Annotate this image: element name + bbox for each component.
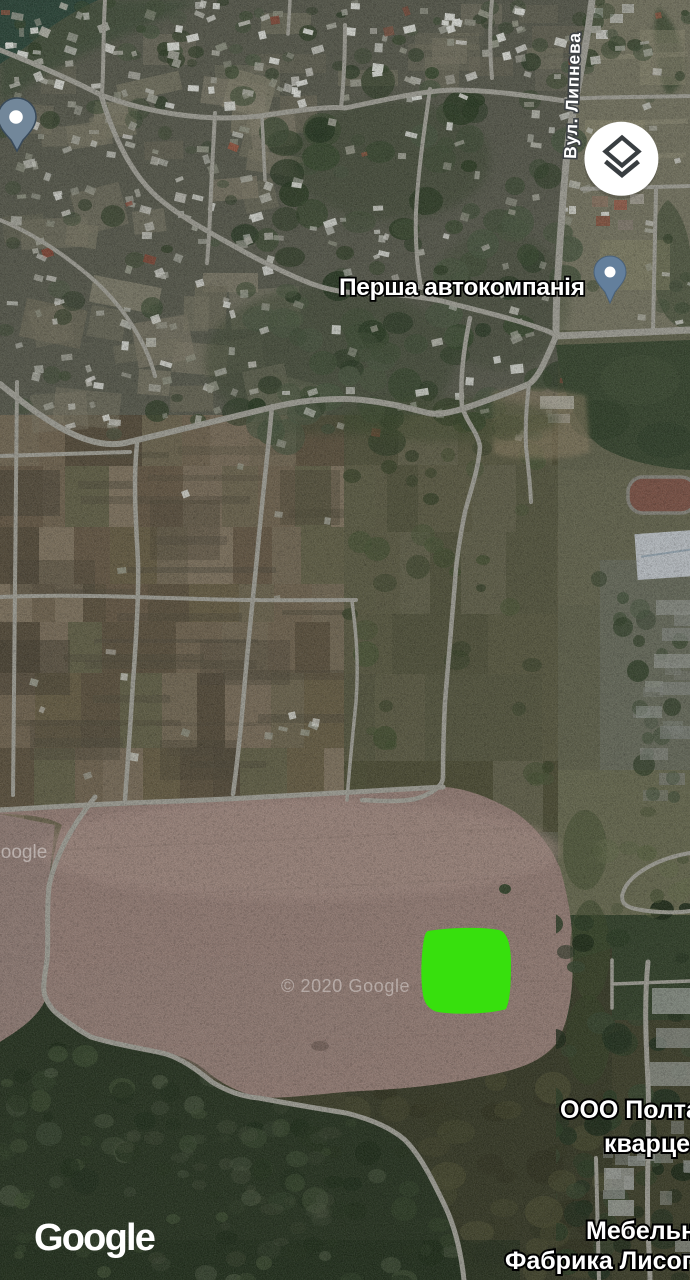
svg-text:Мебельна: Мебельна <box>586 1217 690 1245</box>
svg-text:ООО Полтав: ООО Полтав <box>560 1096 690 1124</box>
svg-text:Перша автокомпанія: Перша автокомпанія <box>339 274 585 301</box>
svg-text:© 2020 Google: © 2020 Google <box>281 976 410 996</box>
svg-text:кварцев: кварцев <box>604 1130 690 1158</box>
svg-text:Фабрика Лисого: Фабрика Лисого <box>505 1247 690 1275</box>
svg-text:Google: Google <box>34 1217 155 1259</box>
svg-text:Google: Google <box>0 842 47 863</box>
